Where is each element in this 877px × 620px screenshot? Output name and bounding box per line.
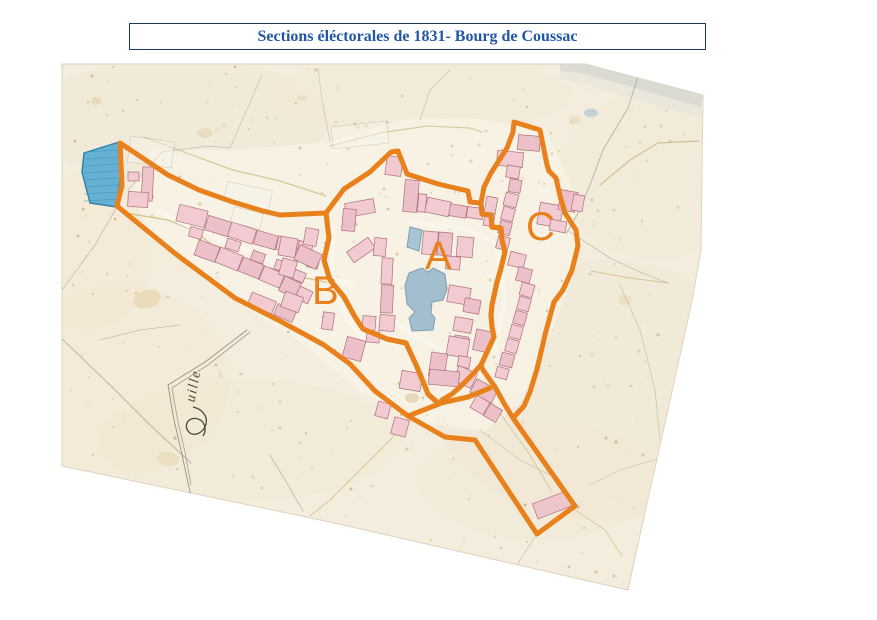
svg-text:B: B <box>312 269 339 313</box>
svg-text:A: A <box>425 234 452 278</box>
svg-text:C: C <box>526 205 555 249</box>
